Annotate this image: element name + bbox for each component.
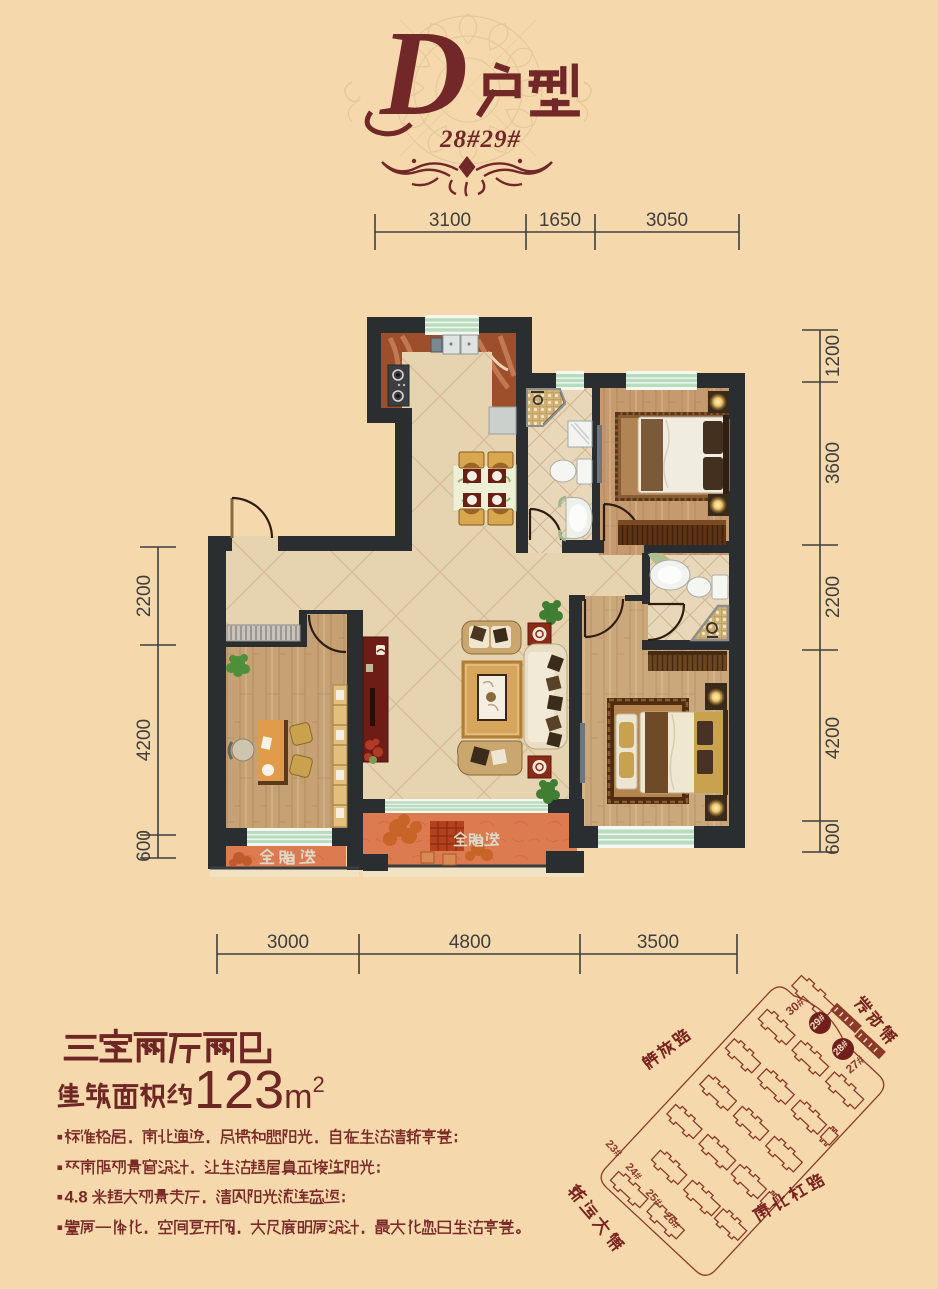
svg-text:2200: 2200: [134, 575, 155, 617]
svg-text:2200: 2200: [823, 576, 844, 618]
svg-text:4200: 4200: [134, 719, 155, 761]
svg-text:1650: 1650: [539, 210, 581, 231]
svg-text:1200: 1200: [823, 335, 844, 377]
svg-text:3000: 3000: [267, 932, 309, 953]
svg-text:D: D: [379, 6, 468, 141]
svg-text:4.8: 4.8: [65, 1187, 88, 1206]
svg-text:3500: 3500: [637, 932, 679, 953]
svg-text:4200: 4200: [823, 717, 844, 759]
svg-text:4800: 4800: [449, 932, 491, 953]
svg-text:28#29#: 28#29#: [439, 126, 521, 153]
svg-text:3050: 3050: [646, 210, 688, 231]
svg-text:600: 600: [823, 823, 844, 855]
svg-text:600: 600: [134, 830, 155, 862]
svg-text:3600: 3600: [823, 442, 844, 484]
svg-text:3100: 3100: [429, 210, 471, 231]
